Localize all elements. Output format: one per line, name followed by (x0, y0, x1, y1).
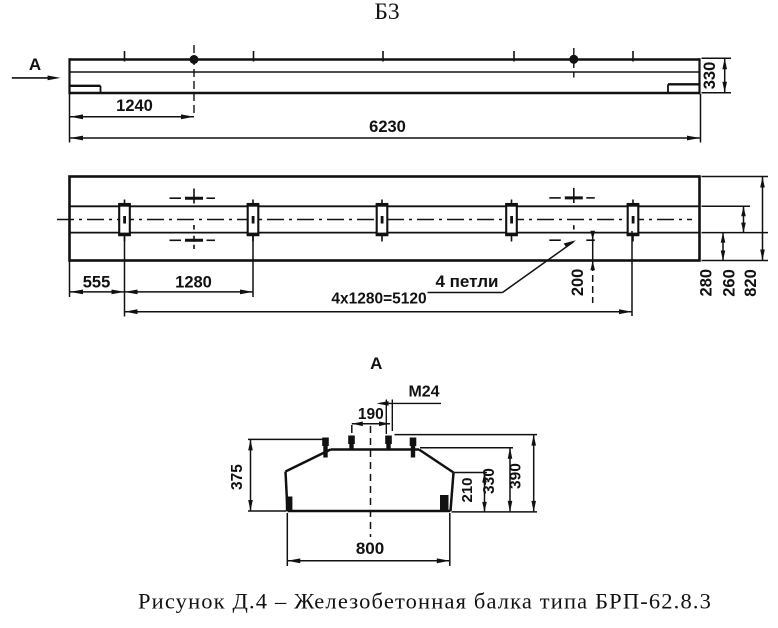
svg-text:4х1280=5120: 4х1280=5120 (331, 291, 426, 308)
svg-text:6230: 6230 (369, 118, 406, 136)
svg-text:555: 555 (83, 274, 111, 292)
svg-text:А: А (370, 354, 382, 373)
svg-text:330: 330 (481, 468, 498, 494)
svg-text:375: 375 (229, 464, 246, 490)
svg-text:330: 330 (701, 62, 719, 90)
svg-text:800: 800 (356, 539, 384, 558)
svg-text:1240: 1240 (116, 97, 153, 115)
svg-text:280: 280 (697, 269, 715, 297)
svg-text:260: 260 (721, 269, 739, 297)
svg-text:4 петли: 4 петли (435, 272, 498, 291)
svg-text:390: 390 (508, 463, 525, 489)
svg-text:Рисунок Д.4 – Железобетонная б: Рисунок Д.4 – Железобетонная балка типа … (138, 589, 712, 614)
svg-text:А: А (29, 55, 41, 74)
svg-text:Б3: Б3 (374, 0, 399, 25)
svg-text:М24: М24 (408, 384, 439, 401)
svg-text:200: 200 (569, 269, 587, 297)
svg-text:820: 820 (742, 269, 760, 297)
svg-text:190: 190 (358, 406, 384, 423)
svg-text:210: 210 (459, 477, 476, 502)
svg-text:1280: 1280 (175, 274, 212, 292)
